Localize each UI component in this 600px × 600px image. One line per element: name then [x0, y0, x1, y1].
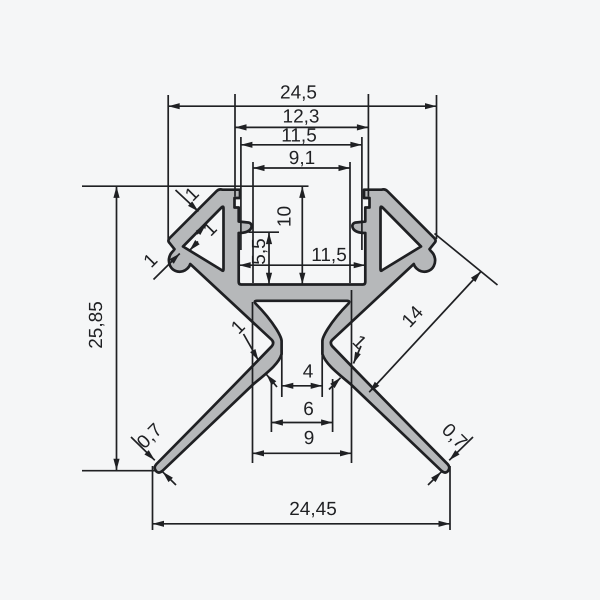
svg-text:24,45: 24,45 [289, 499, 337, 520]
svg-text:6: 6 [303, 399, 314, 420]
svg-text:1: 1 [227, 316, 249, 338]
svg-text:9: 9 [304, 428, 315, 449]
svg-text:10: 10 [275, 206, 296, 227]
svg-text:12,3: 12,3 [283, 107, 320, 128]
svg-text:1: 1 [140, 250, 162, 272]
svg-text:24,5: 24,5 [280, 83, 317, 104]
svg-text:4: 4 [303, 362, 314, 383]
svg-text:25,85: 25,85 [86, 301, 107, 349]
svg-text:1: 1 [199, 218, 221, 240]
svg-text:11,5: 11,5 [281, 126, 317, 147]
svg-text:5,5: 5,5 [249, 238, 270, 264]
svg-text:0,7: 0,7 [133, 420, 167, 454]
svg-text:14: 14 [398, 302, 428, 332]
svg-text:0,7: 0,7 [437, 420, 471, 454]
svg-text:9,1: 9,1 [289, 148, 315, 169]
svg-text:11,5: 11,5 [311, 245, 347, 266]
